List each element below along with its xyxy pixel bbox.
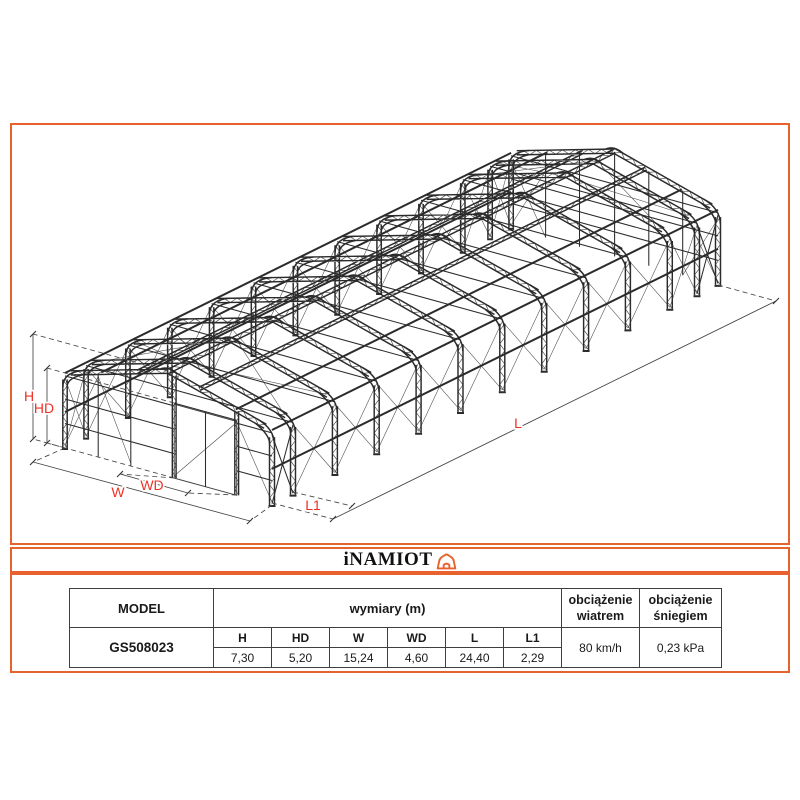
model-value-cell: GS508023 [70, 628, 214, 668]
snow-value-cell: 0,23 kPa [640, 628, 722, 668]
technical-drawing-frame: H HD W WD L1 L [10, 123, 790, 545]
dim-label-wd: WD [140, 477, 163, 493]
wind-load-header-cell: obciążenie wiatrem [562, 589, 640, 628]
dim-col-l: L [446, 628, 504, 648]
dims-header-cell: wymiary (m) [214, 589, 562, 628]
dim-label-h: H [24, 388, 34, 404]
tent-house-icon [436, 552, 457, 570]
dim-label-hd: HD [34, 400, 54, 416]
dim-label-w: W [111, 484, 125, 500]
dim-value-l: 24,40 [446, 648, 504, 668]
spec-table: MODEL wymiary (m) obciążenie wiatrem obc… [69, 588, 722, 668]
dim-col-h: H [214, 628, 272, 648]
steel-truss-structure [62, 148, 722, 506]
logo-text: iNAMIOT [344, 550, 433, 570]
dim-value-h: 7,30 [214, 648, 272, 668]
dim-col-l1: L1 [504, 628, 562, 648]
spec-table-band: MODEL wymiary (m) obciążenie wiatrem obc… [10, 573, 790, 673]
logo-band: iNAMIOT [10, 547, 790, 573]
datasheet-page: H HD W WD L1 L iNAMIOT MODEL [0, 0, 800, 800]
dim-label-l: L [514, 415, 522, 431]
dim-col-wd: WD [388, 628, 446, 648]
structure-wireframe-drawing: H HD W WD L1 L [12, 125, 788, 543]
dim-col-hd: HD [272, 628, 330, 648]
snow-load-header-cell: obciążenie śniegiem [640, 589, 722, 628]
model-header-cell: MODEL [70, 589, 214, 628]
dim-value-wd: 4,60 [388, 648, 446, 668]
gable-door-layer [172, 376, 238, 496]
dim-value-l1: 2,29 [504, 648, 562, 668]
wind-value-cell: 80 km/h [562, 628, 640, 668]
dim-value-hd: 5,20 [272, 648, 330, 668]
dim-label-l1: L1 [305, 497, 321, 513]
dim-col-w: W [330, 628, 388, 648]
purlins-girts [62, 152, 722, 506]
dim-value-w: 15,24 [330, 648, 388, 668]
